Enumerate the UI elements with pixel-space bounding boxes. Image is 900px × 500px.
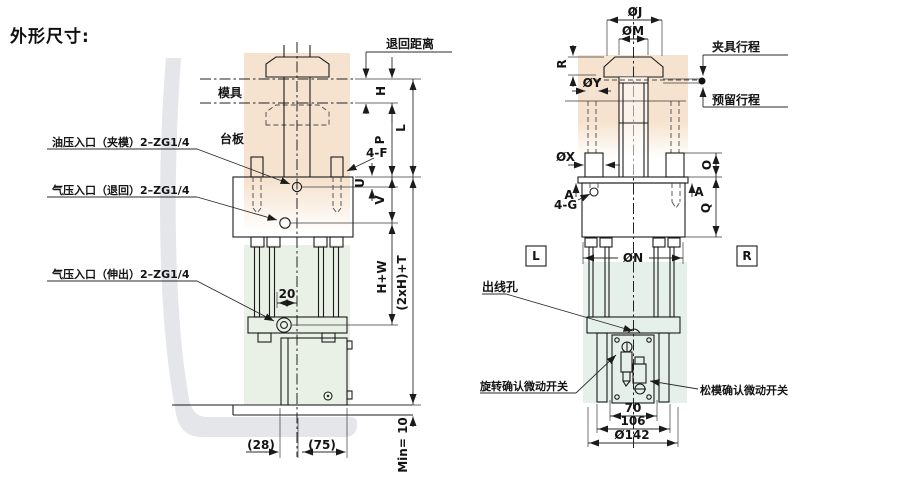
- mold-label: 模具: [218, 85, 242, 100]
- oil-inlet-clamp-label: 油压入口（夹模）2–ZG1/4: [52, 135, 190, 149]
- dim-70-label: 70: [625, 401, 642, 415]
- page-title: 外形尺寸:: [10, 22, 90, 47]
- dimension-drawing-page: 外形尺寸:: [0, 0, 900, 500]
- stroke-reference-dot: [699, 78, 706, 85]
- dim-75-label: (75): [308, 438, 336, 452]
- left-marker-label: L: [532, 249, 540, 263]
- dim-4f-label: 4-F: [366, 146, 388, 160]
- dim-a-right-label: A: [694, 185, 704, 199]
- right-marker-label: R: [742, 249, 751, 263]
- dim-min10-label: Min= 10: [396, 417, 410, 473]
- air-inlet-extend-label: 气压入口（伸出）2–ZG1/4: [51, 267, 190, 281]
- dim-om-label: ØM: [622, 24, 644, 38]
- release-switch-label: 松模确认微动开关: [700, 383, 788, 397]
- dim-h-label: H: [374, 86, 388, 96]
- clamp-stroke-label: 夹具行程: [712, 39, 760, 54]
- dim-u-label: U: [353, 178, 367, 188]
- dim-142-label: Ø142: [614, 428, 649, 442]
- dim-p-label: P: [373, 135, 387, 144]
- dim-on-label: ØN: [623, 251, 643, 265]
- air-inlet-return-label: 气压入口（退回）2–ZG1/4: [51, 183, 190, 197]
- platen-label: 台板: [220, 131, 245, 146]
- dim-o-label: O: [700, 160, 714, 170]
- rotation-switch-label: 旋转确认微动开关: [479, 379, 568, 393]
- dim-20-label: 20: [279, 287, 296, 301]
- dim-hw-label: H+W: [375, 260, 389, 293]
- dim-28-label: (28): [247, 438, 275, 452]
- dim-2ht-label: (2xH)+T: [395, 255, 409, 311]
- dim-ox-label: ØX: [556, 150, 576, 164]
- dim-oy-label: ØY: [583, 76, 602, 90]
- wire-outlet-label: 出线孔: [482, 279, 518, 294]
- reserve-stroke-label: 预留行程: [712, 92, 760, 107]
- dim-q-label: Q: [699, 203, 713, 213]
- technical-drawing: 模具 台板 油压入口（夹模）2–ZG1/4 气压入口（退回）2–ZG1/4 气压…: [0, 0, 900, 500]
- dim-v-label: V: [373, 195, 387, 205]
- right-view: ØJ ØM R ØY ØX A A 4-G O Q ØN 夹具行程 预留行程 出…: [479, 5, 788, 450]
- dim-oj-label: ØJ: [628, 5, 643, 19]
- dim-r-label: R: [555, 59, 569, 68]
- return-distance-label: 退回距离: [386, 36, 434, 51]
- left-view: 模具 台板 油压入口（夹模）2–ZG1/4 气压入口（退回）2–ZG1/4 气压…: [47, 36, 452, 473]
- dim-106-label: 106: [620, 414, 645, 428]
- dim-4g-label: 4-G: [554, 198, 577, 212]
- dim-l-label: L: [394, 124, 408, 132]
